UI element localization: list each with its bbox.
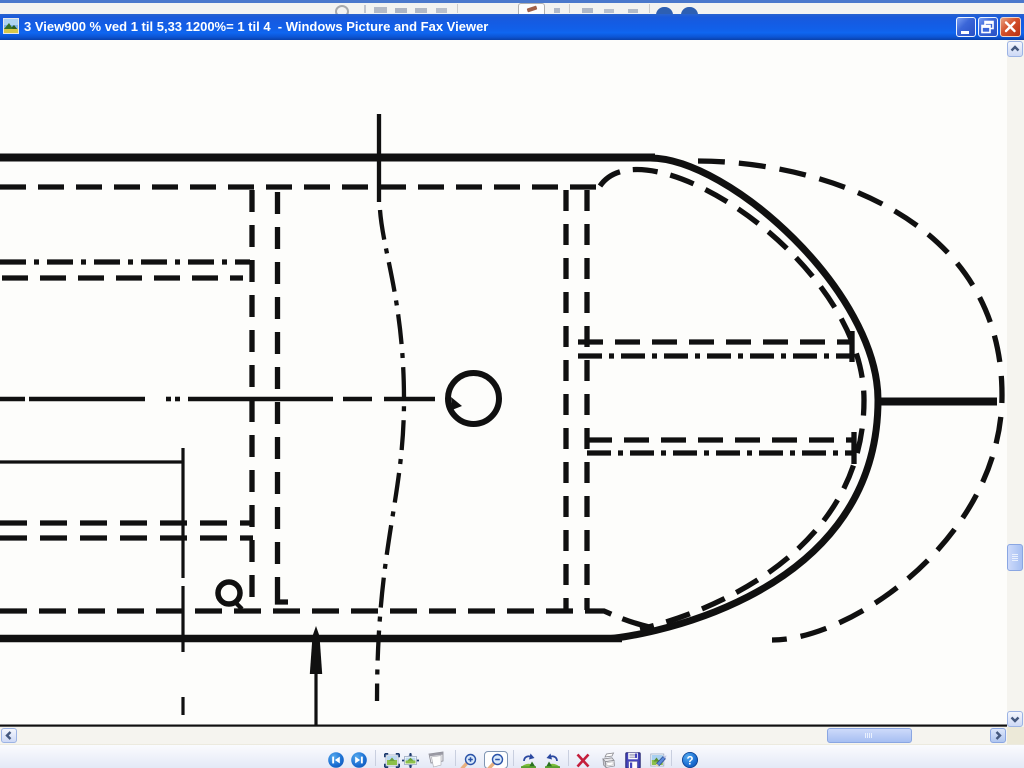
- svg-text:?: ?: [686, 755, 693, 767]
